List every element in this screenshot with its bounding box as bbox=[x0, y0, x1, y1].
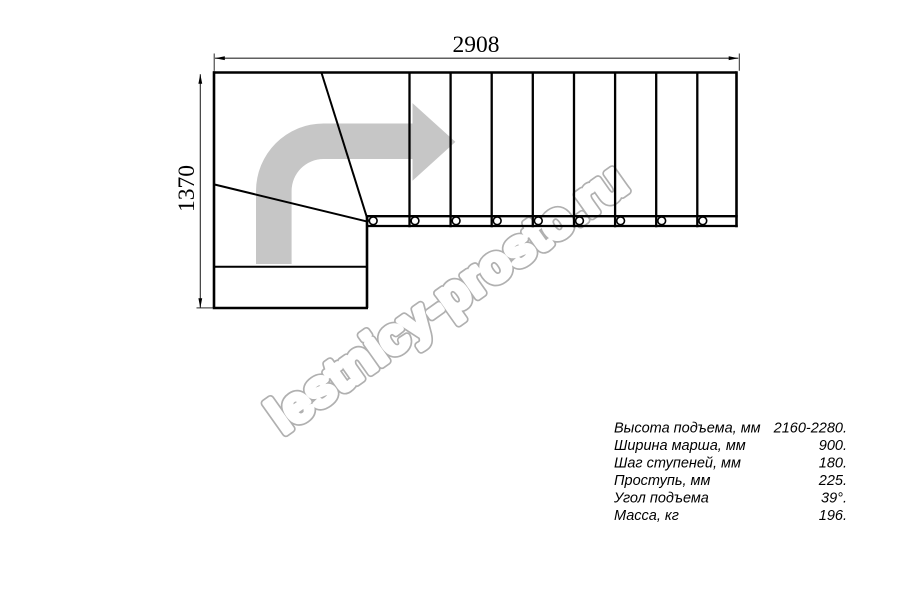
svg-text:180.: 180. bbox=[819, 456, 847, 472]
svg-text:Ширина марша, мм: Ширина марша, мм bbox=[614, 438, 746, 454]
svg-text:2160-2280.: 2160-2280. bbox=[773, 421, 847, 437]
svg-text:Угол подъема: Угол подъема bbox=[613, 490, 709, 506]
svg-text:900.: 900. bbox=[819, 438, 847, 454]
svg-text:lestnicy-prosto.ru: lestnicy-prosto.ru bbox=[256, 152, 636, 444]
svg-text:2908: 2908 bbox=[453, 32, 500, 58]
svg-text:Проступь, мм: Проступь, мм bbox=[614, 473, 710, 489]
svg-text:39°.: 39°. bbox=[821, 490, 847, 506]
svg-text:Масса, кг: Масса, кг bbox=[614, 508, 679, 524]
svg-text:1370: 1370 bbox=[174, 165, 200, 212]
svg-text:225.: 225. bbox=[818, 473, 847, 489]
svg-text:Высота подъема, мм: Высота подъема, мм bbox=[614, 421, 761, 437]
svg-text:Шаг ступеней, мм: Шаг ступеней, мм bbox=[614, 456, 741, 472]
svg-text:196.: 196. bbox=[819, 508, 847, 524]
